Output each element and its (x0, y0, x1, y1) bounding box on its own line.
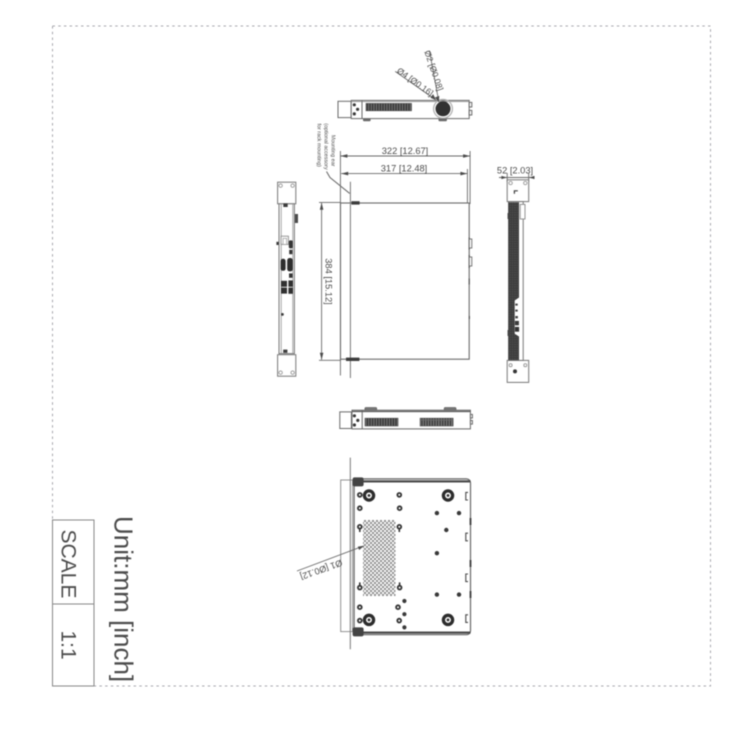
svg-text:Unit:mm [inch]: Unit:mm [inch] (109, 516, 139, 682)
svg-text:52 [2.03]: 52 [2.03] (497, 166, 533, 176)
svg-text:(optional accessory: (optional accessory (322, 123, 328, 170)
svg-text:Ø1 [Ø0.12]: Ø1 [Ø0.12] (299, 558, 344, 582)
svg-text:322 [12.67]: 322 [12.67] (382, 146, 429, 156)
svg-text:384 [15.12]: 384 [15.12] (323, 258, 333, 305)
svg-text:Mounting ear: Mounting ear (329, 135, 335, 167)
svg-text:1:1: 1:1 (57, 631, 80, 660)
svg-text:317 [12.48]: 317 [12.48] (381, 164, 428, 174)
svg-text:SCALE: SCALE (57, 530, 80, 599)
svg-text:for rack mounting): for rack mounting) (315, 124, 321, 168)
